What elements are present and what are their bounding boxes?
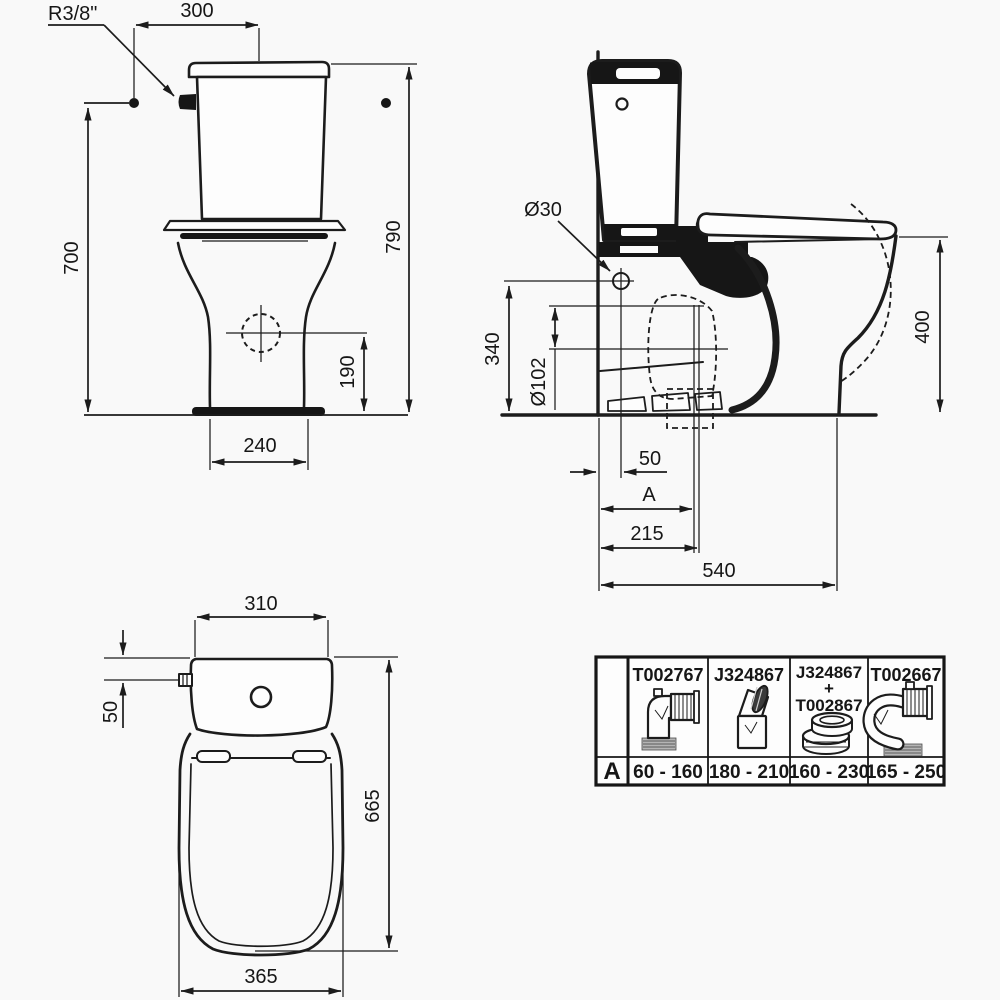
inlet-valve-top-view	[179, 674, 192, 686]
a-range-4: 165 - 250	[866, 762, 946, 783]
seat-outline-outer	[179, 734, 343, 955]
dim-label: 340	[482, 332, 504, 365]
part-number-2: J324867	[714, 665, 784, 685]
dim-front-700: 700	[61, 108, 88, 412]
dim-side-340: 340	[482, 286, 509, 411]
dim-label: Ø30	[524, 199, 562, 221]
dim-label: 365	[244, 966, 277, 988]
dim-side-215: 215	[601, 523, 697, 548]
dim-label: 240	[243, 435, 276, 457]
dim-label: 215	[630, 523, 663, 545]
base-slope-line	[600, 362, 703, 371]
flange-front	[164, 221, 345, 230]
flush-mechanism	[680, 257, 768, 298]
front-view: R3/8" 300 700 790 190 240	[48, 0, 417, 470]
dim-label: A	[642, 484, 656, 506]
leader-arrow	[104, 25, 174, 96]
wc-dimension-drawing: R3/8" 300 700 790 190 240	[0, 0, 1000, 1000]
dim-side-50: 50	[570, 448, 667, 472]
foot-pad-1	[608, 397, 646, 411]
dim-label: 50	[639, 448, 661, 470]
dim-side-A: A	[601, 484, 692, 509]
side-view: Ø30 340 Ø102 400 50	[482, 52, 948, 591]
cistern-body-front	[197, 77, 326, 219]
dim-top-310: 310	[195, 593, 328, 657]
a-range-3: 160 - 230	[789, 762, 869, 783]
cistern-lid-front	[189, 62, 329, 77]
hinge-cap-left	[197, 751, 230, 762]
table-row-label: A	[603, 758, 620, 785]
flush-button-top-view	[251, 687, 271, 707]
bowl-right-front	[304, 243, 335, 407]
a-range-1: 60 - 160	[633, 762, 703, 783]
rim-line-side	[735, 239, 882, 242]
hinge-cap-right	[293, 751, 326, 762]
dim-label: 190	[337, 355, 359, 388]
dim-side-400: 400	[899, 237, 948, 412]
cistern-side	[589, 61, 680, 240]
connector-table: T002767 J324867 J324867 + T002867 T00266…	[596, 657, 946, 785]
elbow-tab	[654, 689, 662, 696]
ribbed-end-flange	[927, 686, 932, 719]
elbow-body	[648, 696, 671, 738]
inlet-point-right	[381, 98, 391, 108]
front-view-fixture	[84, 62, 408, 416]
dim-label: 50	[100, 701, 122, 723]
dim-label: Ø102	[528, 358, 550, 407]
dim-label: 540	[702, 560, 735, 582]
dim-side-540: 540	[601, 560, 835, 585]
foot-pad-2	[652, 393, 690, 411]
dim-label: 300	[180, 0, 213, 22]
cistern-button-side	[617, 99, 628, 110]
dim-top-50: 50	[100, 630, 190, 728]
dim-inlet-thread: R3/8"	[48, 3, 174, 96]
technical-drawing-page: R3/8" 300 700 790 190 240	[0, 0, 1000, 1000]
top-view-fixture	[179, 659, 343, 955]
seat-edge-front	[180, 233, 328, 239]
dim-front-240: 240	[210, 419, 308, 470]
a-range-2: 180 - 210	[709, 762, 789, 783]
ribbed-end-flange	[694, 691, 699, 723]
dim-label: 790	[383, 220, 405, 253]
top-view: 310 50 665 365	[100, 593, 398, 997]
inlet-point-left	[129, 98, 139, 108]
inlet-valve-front	[179, 94, 197, 110]
dim-label: 400	[912, 310, 934, 343]
dim-label: 310	[244, 593, 277, 615]
sump-dashed	[648, 295, 716, 399]
part-number-1: T002767	[632, 665, 703, 685]
bowl-left-front	[178, 243, 210, 407]
lid-slot	[616, 68, 660, 79]
dim-label: R3/8"	[48, 3, 97, 25]
platform-slot	[620, 246, 658, 253]
s-bend-tab	[906, 682, 914, 689]
dim-front-190: 190	[337, 337, 364, 411]
dim-label: 665	[362, 789, 384, 822]
base-band-slot	[621, 228, 657, 236]
dim-label: 700	[61, 241, 83, 274]
seat-outline-inner	[189, 764, 333, 946]
ring-hole	[820, 716, 844, 724]
